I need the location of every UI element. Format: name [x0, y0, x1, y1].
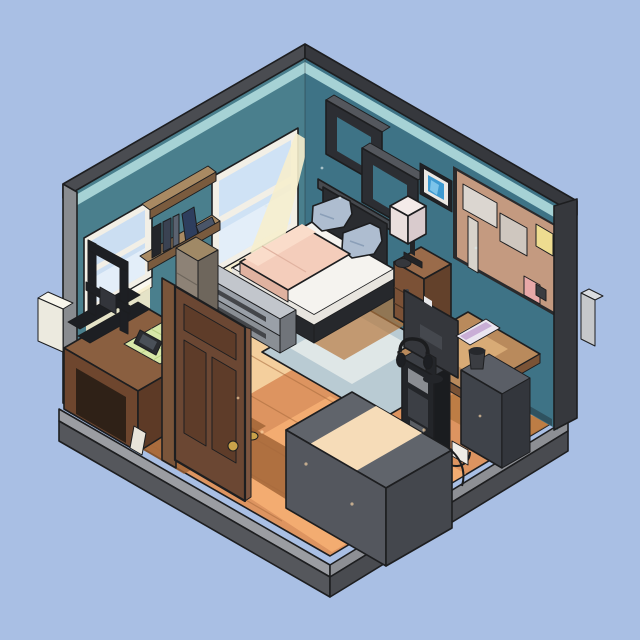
door-knob: [228, 441, 238, 451]
speck-10: [475, 247, 478, 250]
headphones-cup-right: [424, 355, 433, 369]
speck-7: [321, 167, 324, 170]
speck-6: [237, 397, 240, 400]
isometric-room-illustration: [0, 0, 640, 640]
speck-3: [422, 428, 425, 431]
speck-8: [339, 197, 342, 200]
speck-2: [304, 462, 307, 465]
monitor-stand-base: [423, 375, 443, 384]
mug-top: [469, 347, 485, 355]
right-wall-end-cap: [554, 199, 577, 430]
speck-4: [479, 415, 482, 418]
book-3: [173, 214, 179, 247]
headphones-cup-left: [397, 353, 406, 367]
pinned-paper-strip: [468, 216, 478, 273]
speck-5: [350, 502, 353, 505]
book-2: [163, 218, 171, 252]
door-inset-left: [184, 340, 206, 446]
book-1: [152, 223, 161, 258]
room-canvas: [0, 0, 640, 640]
cabinet-side: [502, 378, 530, 468]
speck-9: [265, 205, 268, 208]
exterior-sill-right-face: [581, 293, 595, 346]
speck-1: [260, 430, 263, 433]
